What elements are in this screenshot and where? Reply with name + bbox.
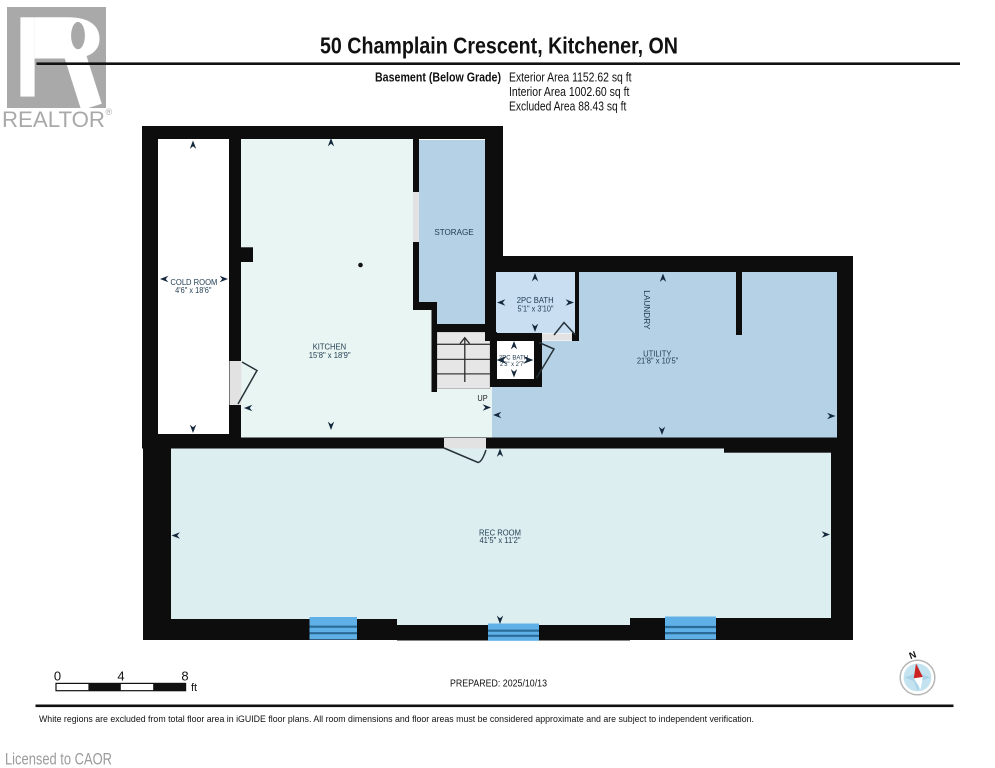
svg-text:5'1" x 3'10": 5'1" x 3'10" — [518, 305, 554, 314]
svg-text:50 Champlain Crescent, Kitchen: 50 Champlain Crescent, Kitchener, ON — [320, 33, 678, 59]
svg-text:®: ® — [106, 107, 113, 117]
svg-text:4: 4 — [117, 669, 124, 684]
svg-text:Interior Area 1002.60 sq ft: Interior Area 1002.60 sq ft — [509, 84, 630, 99]
svg-text:Excluded Area 88.43 sq ft: Excluded Area 88.43 sq ft — [509, 98, 627, 113]
svg-text:Exterior Area 1152.62 sq ft: Exterior Area 1152.62 sq ft — [509, 70, 632, 85]
svg-text:PREPARED: 2025/10/13: PREPARED: 2025/10/13 — [450, 679, 547, 690]
svg-text:4'6" x 18'6": 4'6" x 18'6" — [175, 286, 211, 295]
svg-text:0: 0 — [54, 669, 61, 684]
svg-text:N: N — [908, 649, 918, 662]
svg-text:15'8" x 18'9": 15'8" x 18'9" — [309, 351, 351, 360]
svg-text:8: 8 — [181, 669, 188, 684]
svg-text:STORAGE: STORAGE — [434, 228, 474, 237]
svg-text:Basement (Below Grade): Basement (Below Grade) — [375, 70, 501, 85]
svg-text:41'5" x 11'2": 41'5" x 11'2" — [479, 536, 520, 545]
svg-text:LAUNDRY: LAUNDRY — [642, 290, 651, 330]
svg-text:REALTOR: REALTOR — [2, 107, 105, 132]
svg-text:White regions are excluded fro: White regions are excluded from total fl… — [39, 714, 754, 724]
svg-text:21'8" x 10'5": 21'8" x 10'5" — [637, 357, 679, 366]
svg-text:ft: ft — [191, 682, 197, 694]
svg-text:UP: UP — [477, 394, 487, 403]
svg-text:Licensed to CAOR: Licensed to CAOR — [5, 751, 112, 768]
